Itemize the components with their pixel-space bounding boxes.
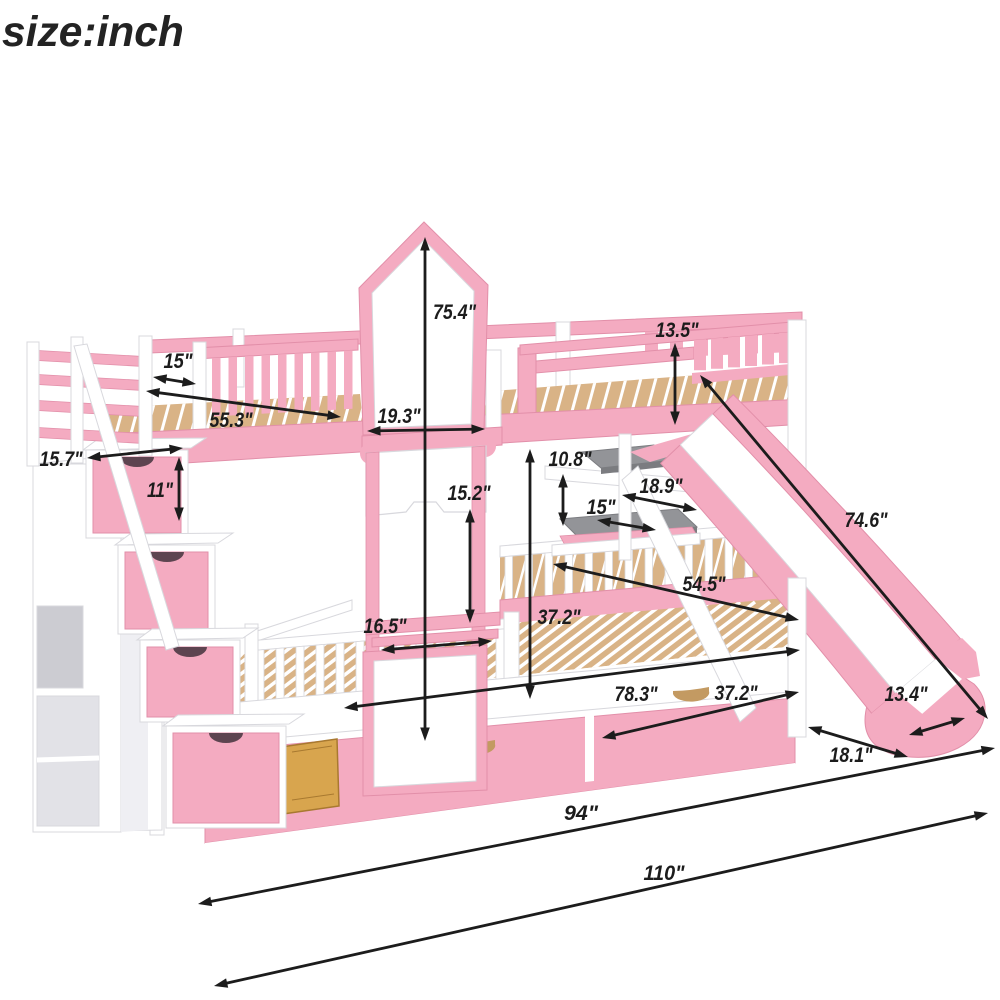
svg-text:13.5": 13.5" xyxy=(656,318,700,342)
svg-text:18.9": 18.9" xyxy=(640,474,684,498)
svg-text:16.5": 16.5" xyxy=(364,614,408,638)
svg-text:19.3": 19.3" xyxy=(378,404,422,428)
svg-text:11": 11" xyxy=(147,478,174,502)
svg-text:13.4": 13.4" xyxy=(885,682,929,706)
svg-text:74.6": 74.6" xyxy=(845,508,889,532)
svg-text:110": 110" xyxy=(644,861,686,885)
svg-text:55.3": 55.3" xyxy=(210,408,254,432)
svg-text:78.3": 78.3" xyxy=(615,682,659,706)
svg-text:size:inch: size:inch xyxy=(2,9,184,56)
svg-text:37.2": 37.2" xyxy=(715,681,759,705)
svg-text:15": 15" xyxy=(164,349,194,373)
svg-text:75.4": 75.4" xyxy=(433,300,477,324)
svg-text:18.1": 18.1" xyxy=(830,743,874,767)
svg-text:94": 94" xyxy=(564,801,599,825)
svg-text:54.5": 54.5" xyxy=(683,572,727,596)
svg-text:15.7": 15.7" xyxy=(40,447,84,471)
svg-text:10.8": 10.8" xyxy=(549,447,593,471)
svg-text:15.2": 15.2" xyxy=(448,481,492,505)
svg-text:37.2": 37.2" xyxy=(538,605,582,629)
svg-text:15": 15" xyxy=(587,495,617,519)
